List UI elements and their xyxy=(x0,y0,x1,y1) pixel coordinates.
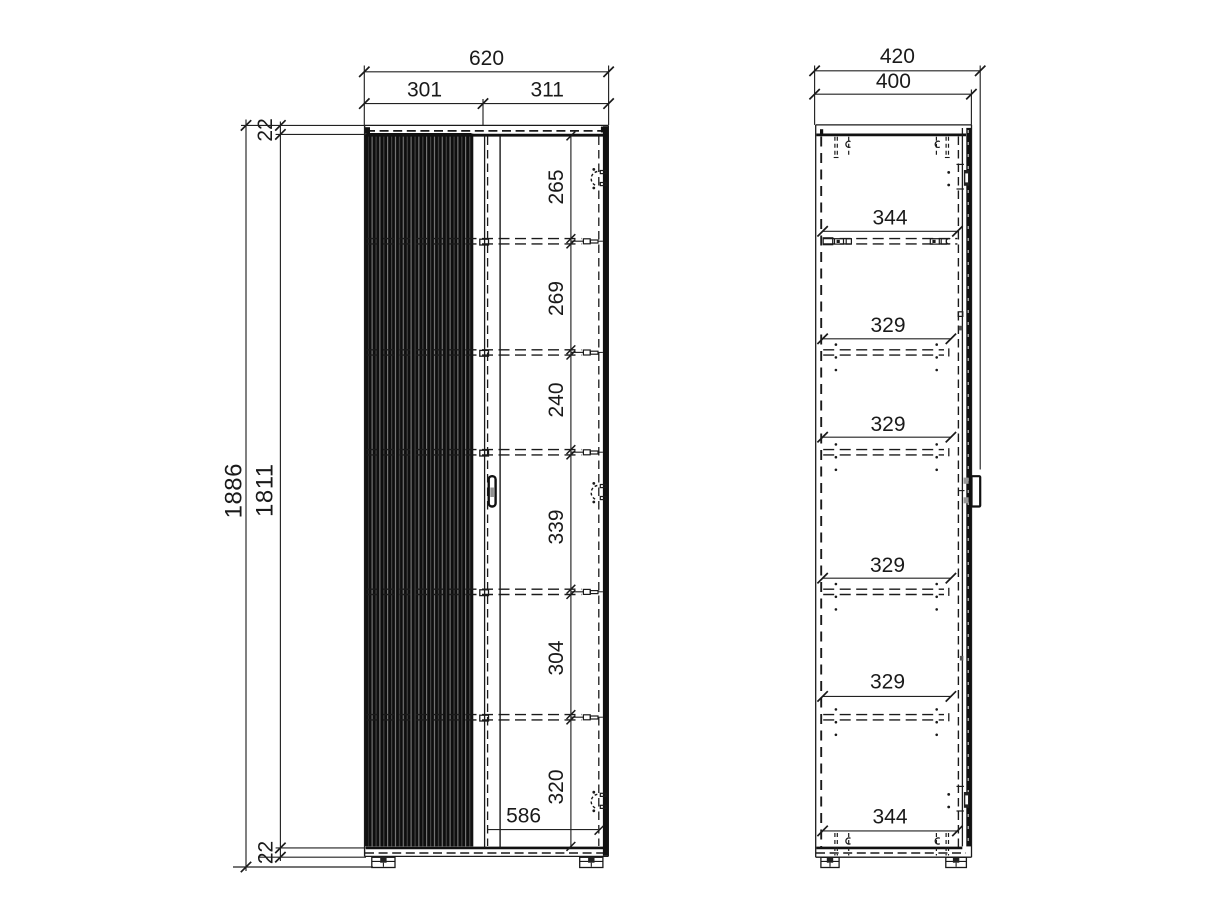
svg-text:344: 344 xyxy=(872,207,907,230)
svg-text:586: 586 xyxy=(506,805,541,828)
svg-text:329: 329 xyxy=(870,413,905,436)
svg-text:1811: 1811 xyxy=(251,463,278,517)
svg-text:329: 329 xyxy=(870,314,905,337)
svg-text:420: 420 xyxy=(880,45,915,68)
svg-text:320: 320 xyxy=(545,769,568,804)
svg-text:1886: 1886 xyxy=(221,463,248,518)
svg-text:22: 22 xyxy=(254,841,277,864)
svg-text:304: 304 xyxy=(545,640,568,675)
svg-text:329: 329 xyxy=(870,554,905,577)
svg-text:269: 269 xyxy=(545,281,568,316)
svg-text:240: 240 xyxy=(545,382,568,417)
svg-text:620: 620 xyxy=(469,47,504,70)
svg-text:344: 344 xyxy=(872,805,907,828)
svg-text:400: 400 xyxy=(876,70,911,93)
svg-text:301: 301 xyxy=(407,78,442,101)
svg-text:329: 329 xyxy=(870,671,905,694)
svg-text:22: 22 xyxy=(254,118,277,141)
svg-text:311: 311 xyxy=(530,78,563,101)
svg-text:265: 265 xyxy=(545,169,568,204)
svg-text:339: 339 xyxy=(545,509,568,544)
